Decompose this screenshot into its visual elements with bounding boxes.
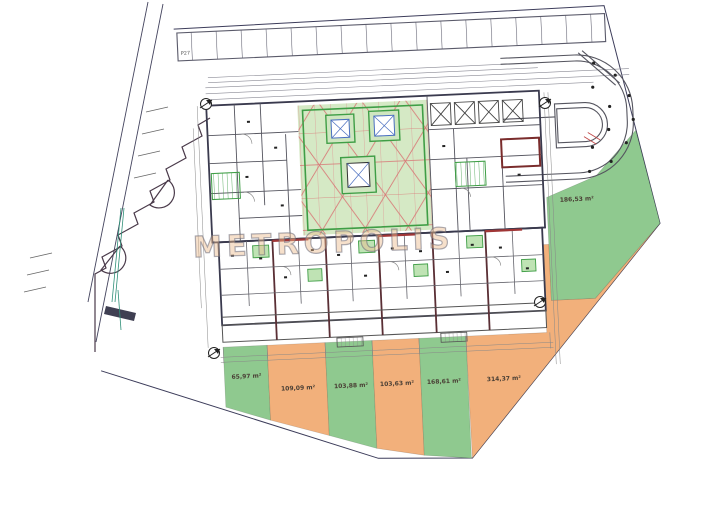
garden-plot <box>372 338 424 457</box>
garden-plot <box>544 129 663 300</box>
site-plan-drawing: P27 <box>0 0 720 510</box>
site-plan-canvas: P27 <box>0 0 720 510</box>
entrance-marker-icon <box>208 348 220 359</box>
stair-right <box>455 161 486 186</box>
garden-plot <box>419 336 471 460</box>
area-label: 65,97 m² <box>231 373 262 381</box>
left-wing-walls <box>206 102 303 243</box>
plan-tilted-group: P27 <box>86 4 671 475</box>
right-wing-walls <box>427 91 545 233</box>
shaft-boxes <box>430 99 523 125</box>
skylight <box>369 110 400 141</box>
parking-row: P27 <box>177 14 606 61</box>
red-walled-room <box>501 138 540 168</box>
skylight <box>326 114 355 143</box>
building <box>206 91 550 353</box>
entrance-marker-icon <box>200 99 212 110</box>
elevator-skylight <box>341 156 377 194</box>
parking-label: P27 <box>181 50 191 56</box>
north-sidewalk-lines <box>205 59 630 100</box>
entrance-marker-icon <box>539 98 551 109</box>
entrance-marker-icon <box>534 297 546 308</box>
garden-plot <box>325 340 377 450</box>
stair-left <box>211 172 240 199</box>
garden-plots <box>214 129 670 469</box>
